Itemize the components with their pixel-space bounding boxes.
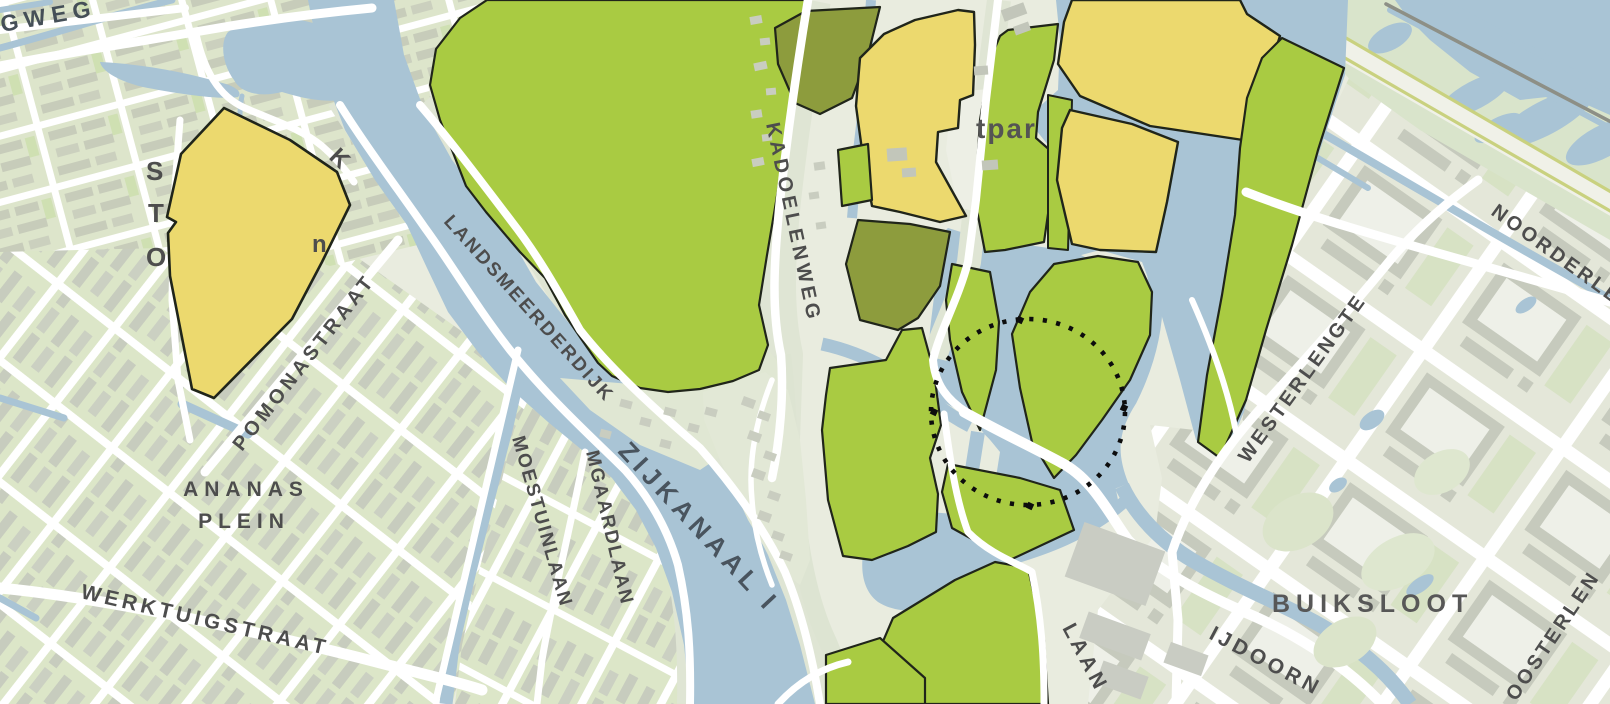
svg-text:ANANAS: ANANAS	[183, 478, 309, 501]
svg-text:tpar: tpar	[976, 113, 1037, 144]
svg-text:BUIKSLOOT: BUIKSLOOT	[1272, 590, 1473, 618]
svg-text:S: S	[146, 156, 163, 186]
svg-text:PLEIN: PLEIN	[198, 510, 290, 533]
svg-text:T: T	[148, 198, 164, 228]
svg-text:n: n	[312, 231, 327, 258]
svg-text:O: O	[146, 242, 166, 272]
